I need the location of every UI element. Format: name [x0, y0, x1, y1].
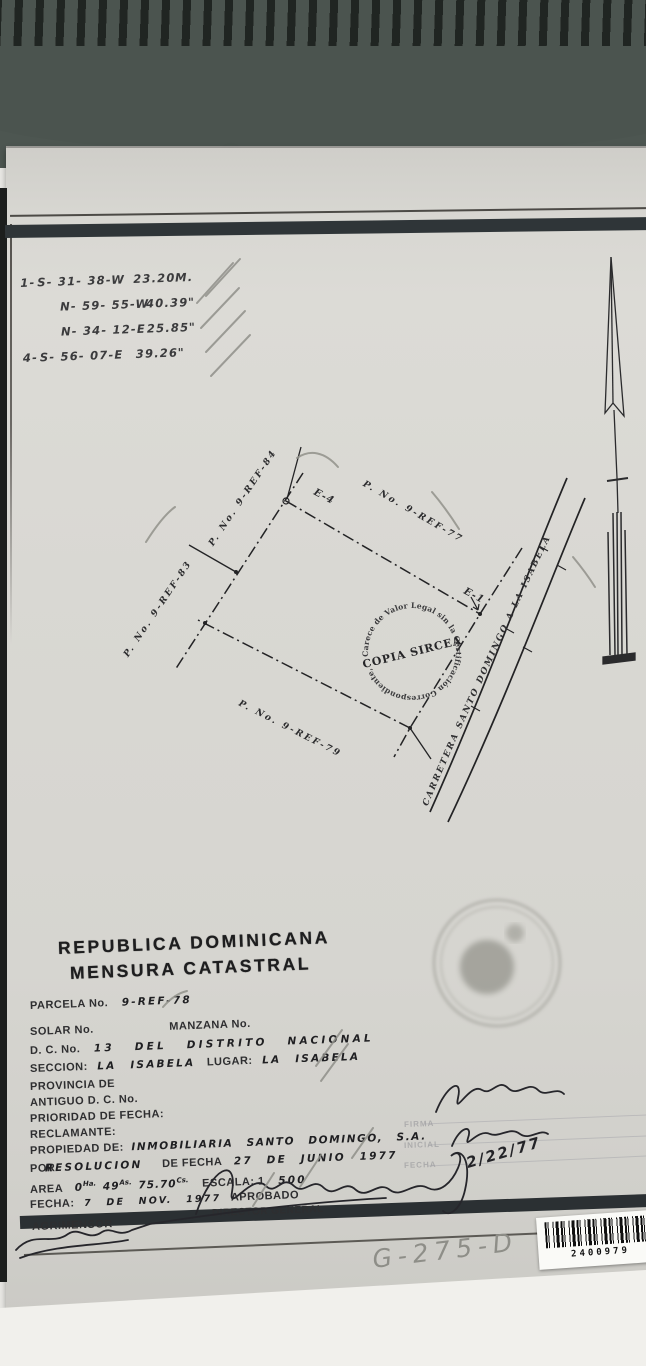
- pencil-check-defecha: [300, 1155, 321, 1187]
- vertex-e1-marker: [478, 612, 482, 616]
- road-label: CARRETERA SANTO DOMINGO A LA ISABELA: [421, 534, 553, 808]
- road-edge-outer: [448, 498, 585, 822]
- pencil-stroke-ref83: [146, 507, 175, 542]
- signatures: [16, 1085, 564, 1258]
- pencil-stroke-road: [573, 557, 595, 587]
- road-tick-marks: [471, 546, 566, 711]
- pencil-check-row1: [197, 259, 240, 303]
- north-arrow-base: [603, 653, 635, 664]
- neighbor-n-label: P. No. 9-REF-77: [360, 479, 465, 545]
- pencil-check-marks: [146, 259, 595, 1206]
- copia-sircea-watermark: Carece de Valor Legal sin la Certificaci…: [350, 590, 474, 714]
- vertex-west-mid-marker: [234, 570, 238, 574]
- neighbor-s-label: P. No. 9-REF-79: [236, 698, 343, 759]
- scanned-document-photo: 1- S- 31- 38-W 23.20 M. N- 59- 55-W 40.3…: [0, 0, 646, 1366]
- road-label-text: CARRETERA SANTO DOMINGO A LA ISABELA: [421, 534, 553, 808]
- pencil-curl-plot-top: [297, 453, 338, 467]
- corner-e4-label: E-4: [311, 486, 336, 506]
- division-stub-west: [189, 545, 236, 572]
- corner-e1-label: E-1: [461, 585, 486, 605]
- boundary-south-line: [198, 620, 410, 728]
- survey-drawing-layer: CARRETERA SANTO DOMINGO A LA ISABELA P. …: [0, 0, 646, 1366]
- north-arrow-icon: [603, 257, 635, 664]
- stub-above-e4: [287, 447, 301, 499]
- neighbor-nw-label: P. No. 9-REF-84: [207, 448, 280, 549]
- registry-date-value: 2/22/77: [464, 1133, 543, 1172]
- vertex-south-marker: [408, 726, 412, 730]
- director-signature: [196, 1153, 467, 1214]
- pencil-check-propiedad: [352, 1128, 373, 1158]
- north-arrow-shaft: [614, 410, 618, 513]
- firma-rule: [424, 1115, 646, 1124]
- seal-smudge: [506, 924, 524, 942]
- neighbor-labels: P. No. 9-REF-84 P. No. 9-REF-83 P. No. 9…: [122, 448, 486, 760]
- vertex-west-marker: [203, 621, 207, 625]
- stub-to-road: [410, 728, 431, 759]
- registry-signature-1: [436, 1085, 564, 1112]
- boundary-stubs: [189, 447, 431, 759]
- seal-center-emblem: [460, 940, 514, 994]
- agrimensor-signature: [16, 1198, 386, 1258]
- pencil-arrow-parcela: [163, 991, 187, 1007]
- north-arrow-head: [605, 257, 624, 416]
- faded-seal-stamp-icon: [434, 900, 560, 1026]
- pencil-check-dc-seccion: [316, 1030, 348, 1081]
- north-arrow-lower-shaft: [608, 512, 627, 655]
- neighbor-w-label: P. No. 9-REF-83: [122, 559, 195, 660]
